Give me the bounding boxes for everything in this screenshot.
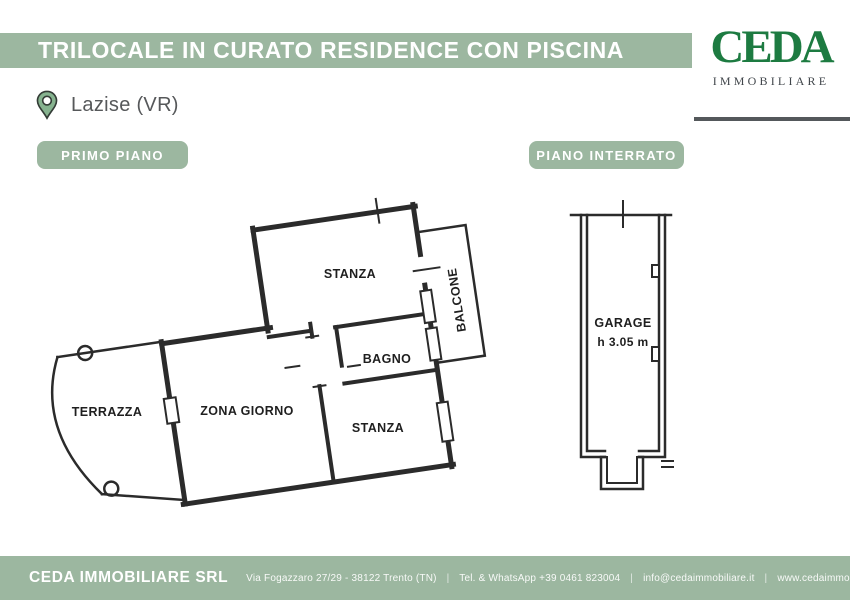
listing-flyer: TRILOCALE IN CURATO RESIDENCE CON PISCIN… [0, 0, 850, 600]
footer-email: info@cedaimmobiliare.it [643, 573, 754, 584]
room-label-stanza-top: STANZA [324, 267, 376, 281]
floorplan-primo-piano-drawing [25, 180, 525, 530]
title-banner: TRILOCALE IN CURATO RESIDENCE CON PISCIN… [0, 33, 692, 68]
map-pin-icon [36, 90, 58, 120]
location-row: Lazise (VR) [36, 90, 179, 120]
room-label-bagno: BAGNO [363, 352, 412, 366]
room-label-zona-giorno: ZONA GIORNO [200, 404, 294, 418]
footer-address: Via Fogazzaro 27/29 - 38122 Trento (TN) [246, 573, 437, 584]
footer-contacts: Via Fogazzaro 27/29 - 38122 Trento (TN) … [246, 573, 850, 584]
footer-separator: | [447, 573, 450, 584]
footer-separator: | [765, 573, 768, 584]
footer-website: www.cedaimmobiliare.it [777, 573, 850, 584]
floorplan-garage-drawing [565, 195, 685, 505]
listing-title: TRILOCALE IN CURATO RESIDENCE CON PISCIN… [38, 37, 624, 64]
footer-separator: | [630, 573, 633, 584]
location-label: Lazise (VR) [71, 94, 179, 117]
footer-company: CEDA IMMOBILIARE SRL [29, 569, 228, 587]
garage-height-note: h 3.05 m [597, 335, 648, 349]
room-label-terrazza: TERRAZZA [72, 405, 143, 419]
logo-divider-line [694, 117, 850, 121]
floorplan-piano-interrato: GARAGE h 3.05 m [565, 195, 685, 505]
floorplan-primo-piano: STANZA BALCONE BAGNO ZONA GIORNO STANZA … [25, 180, 525, 530]
room-label-garage: GARAGE [594, 316, 651, 330]
logo-subtitle: IMMOBILIARE [692, 74, 850, 89]
badge-piano-interrato: PIANO INTERRATO [529, 141, 684, 169]
room-label-stanza-bottom: STANZA [352, 421, 404, 435]
footer-phone: Tel. & WhatsApp +39 0461 823004 [459, 573, 620, 584]
logo-wordmark: CEDA [692, 24, 850, 71]
agency-logo: CEDA IMMOBILIARE [692, 24, 850, 89]
badge-primo-piano: PRIMO PIANO [37, 141, 188, 169]
footer-bar: CEDA IMMOBILIARE SRL Via Fogazzaro 27/29… [0, 556, 850, 600]
